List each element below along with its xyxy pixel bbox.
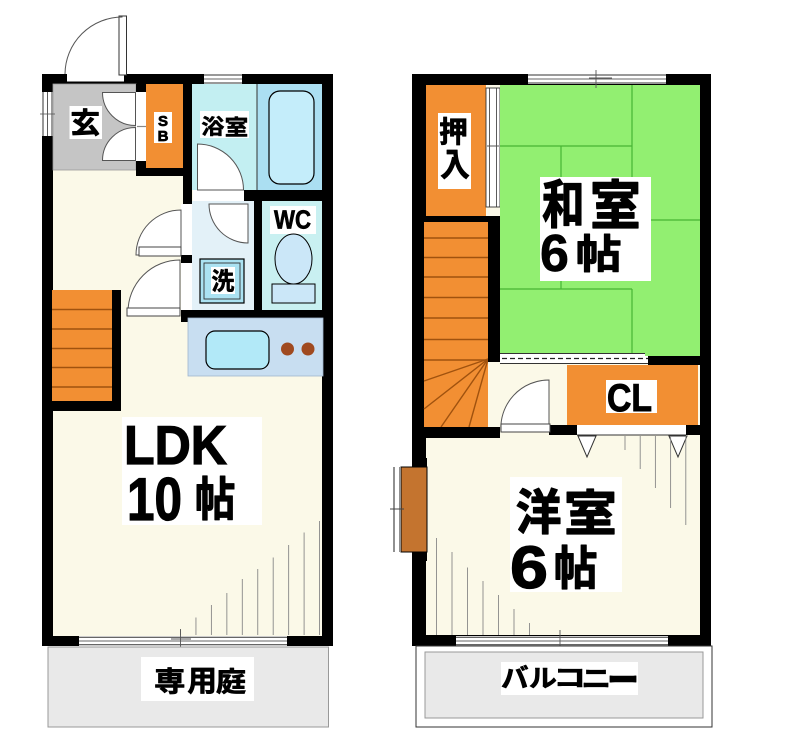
svg-text:WC: WC <box>274 205 311 235</box>
svg-text:6: 6 <box>540 225 569 283</box>
svg-text:CL: CL <box>607 377 652 420</box>
svg-text:6: 6 <box>510 534 548 601</box>
svg-text:10: 10 <box>127 466 182 533</box>
svg-text:B: B <box>158 128 169 145</box>
